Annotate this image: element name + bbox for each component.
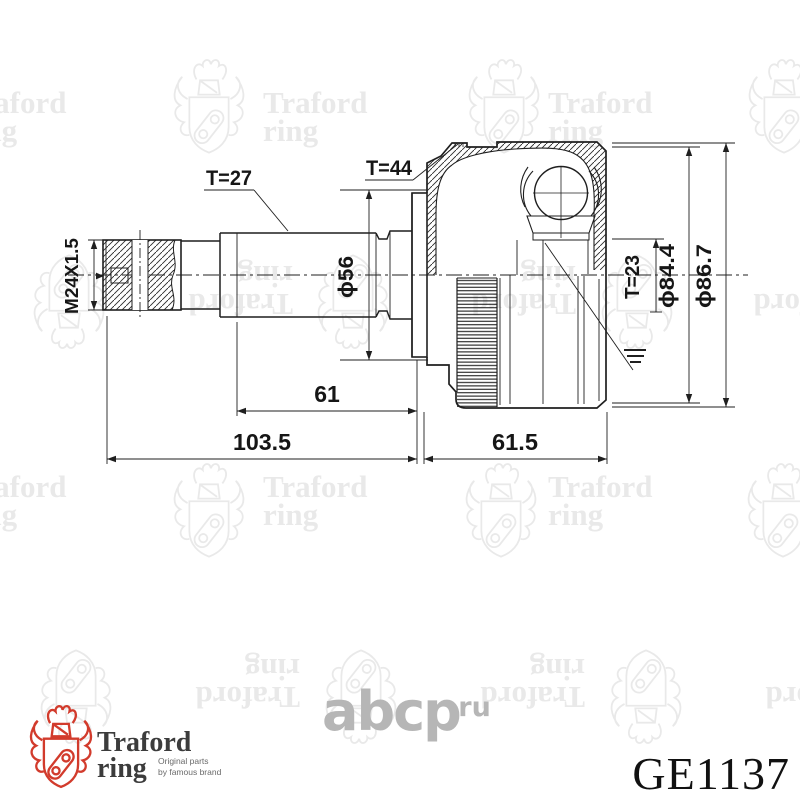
abs-ring-band bbox=[457, 278, 497, 407]
watermark-tile: Traford ring bbox=[754, 259, 800, 322]
abcp-watermark: abcp .ru bbox=[322, 680, 491, 743]
brand-logo: Traford ring Original parts by famous br… bbox=[31, 706, 222, 787]
part-number: GE1137 bbox=[632, 748, 790, 799]
cage-arc bbox=[523, 171, 533, 216]
watermark-tile: Traford ring bbox=[263, 469, 367, 532]
cv-joint-drawing bbox=[68, 142, 748, 408]
svg-text:ring: ring bbox=[520, 259, 576, 294]
svg-text:Traford: Traford bbox=[766, 680, 800, 715]
svg-text:ϕ84.4: ϕ84.4 bbox=[656, 244, 679, 308]
watermark-text: ring bbox=[0, 113, 18, 148]
svg-text:M24X1.5: M24X1.5 bbox=[62, 238, 82, 314]
technical-drawing-sheet: Traford ring Traford ring Traford ring T… bbox=[0, 0, 800, 800]
crest-watermark-icon bbox=[175, 464, 244, 557]
svg-text:T=27: T=27 bbox=[206, 167, 252, 190]
watermark-tile: Traford ring bbox=[189, 259, 293, 322]
crest-watermark-icon bbox=[467, 464, 536, 557]
watermark-tile: Traford ring bbox=[0, 469, 66, 532]
watermark-tile: Traford ring bbox=[0, 85, 66, 148]
svg-text:ϕ56: ϕ56 bbox=[335, 256, 358, 298]
watermark-tile: Traford ring bbox=[766, 652, 800, 715]
abcp-logo-text: abcp bbox=[322, 680, 460, 743]
crest-watermark-icon bbox=[175, 60, 244, 153]
svg-text:ring: ring bbox=[237, 259, 293, 294]
svg-text:ring: ring bbox=[529, 652, 585, 687]
svg-text:ring: ring bbox=[263, 113, 319, 148]
watermark-tile: Traford ring bbox=[548, 85, 652, 148]
svg-text:ring: ring bbox=[263, 497, 319, 532]
watermark-tile bbox=[612, 650, 681, 743]
svg-text:T=23: T=23 bbox=[622, 255, 644, 299]
crest-watermark-icon bbox=[612, 650, 681, 743]
watermark-tile: Traford ring bbox=[548, 469, 652, 532]
screenshot-root: Traford ring Traford ring Traford ring T… bbox=[0, 0, 800, 800]
brand-tagline: by famous brand bbox=[158, 767, 222, 777]
dim-spline-shaft-teeth: T=27 bbox=[204, 167, 288, 231]
svg-text:T=44: T=44 bbox=[366, 157, 412, 180]
svg-text:ring: ring bbox=[548, 497, 604, 532]
watermark-tile: Traford ring bbox=[481, 652, 585, 715]
threaded-stub bbox=[96, 230, 181, 320]
brand-title: ring bbox=[97, 753, 147, 784]
dim-shaft-length: 103.5 bbox=[107, 316, 417, 464]
crest-watermark-icon bbox=[749, 464, 800, 557]
svg-text:61: 61 bbox=[314, 381, 340, 407]
svg-text:61.5: 61.5 bbox=[492, 429, 538, 455]
abcp-logo-suffix: .ru bbox=[448, 692, 491, 723]
brand-tagline: Original parts bbox=[158, 756, 209, 766]
dim-inner-spline-teeth: T=23 bbox=[612, 239, 664, 312]
svg-text:ϕ86.7: ϕ86.7 bbox=[693, 244, 716, 308]
housing-section-top bbox=[427, 142, 606, 275]
svg-text:Traford: Traford bbox=[754, 287, 800, 322]
svg-text:103.5: 103.5 bbox=[233, 429, 291, 455]
crest-watermark-icon bbox=[470, 60, 539, 153]
dim-housing-length: 61.5 bbox=[424, 412, 607, 464]
watermark-tile: Traford ring bbox=[196, 652, 300, 715]
svg-text:ring: ring bbox=[0, 497, 18, 532]
svg-text:ring: ring bbox=[244, 652, 300, 687]
watermark-tile: Traford ring bbox=[263, 85, 367, 148]
brand-crest-icon bbox=[31, 706, 91, 787]
crest-watermark-icon bbox=[750, 60, 800, 153]
